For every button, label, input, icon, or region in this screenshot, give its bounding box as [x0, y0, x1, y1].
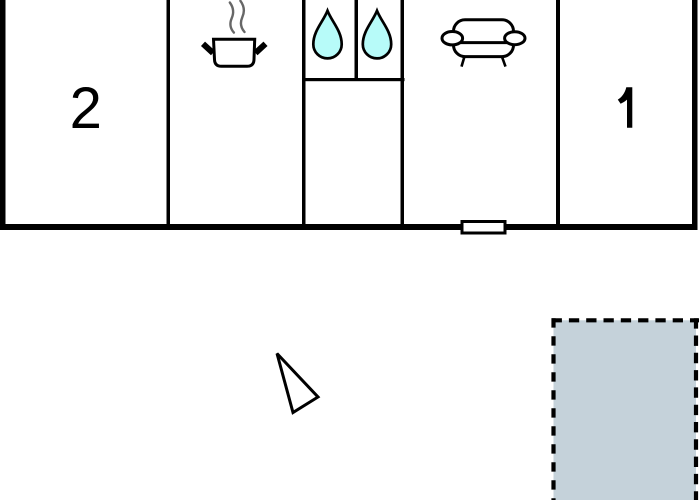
svg-text:2: 2 [70, 76, 102, 141]
